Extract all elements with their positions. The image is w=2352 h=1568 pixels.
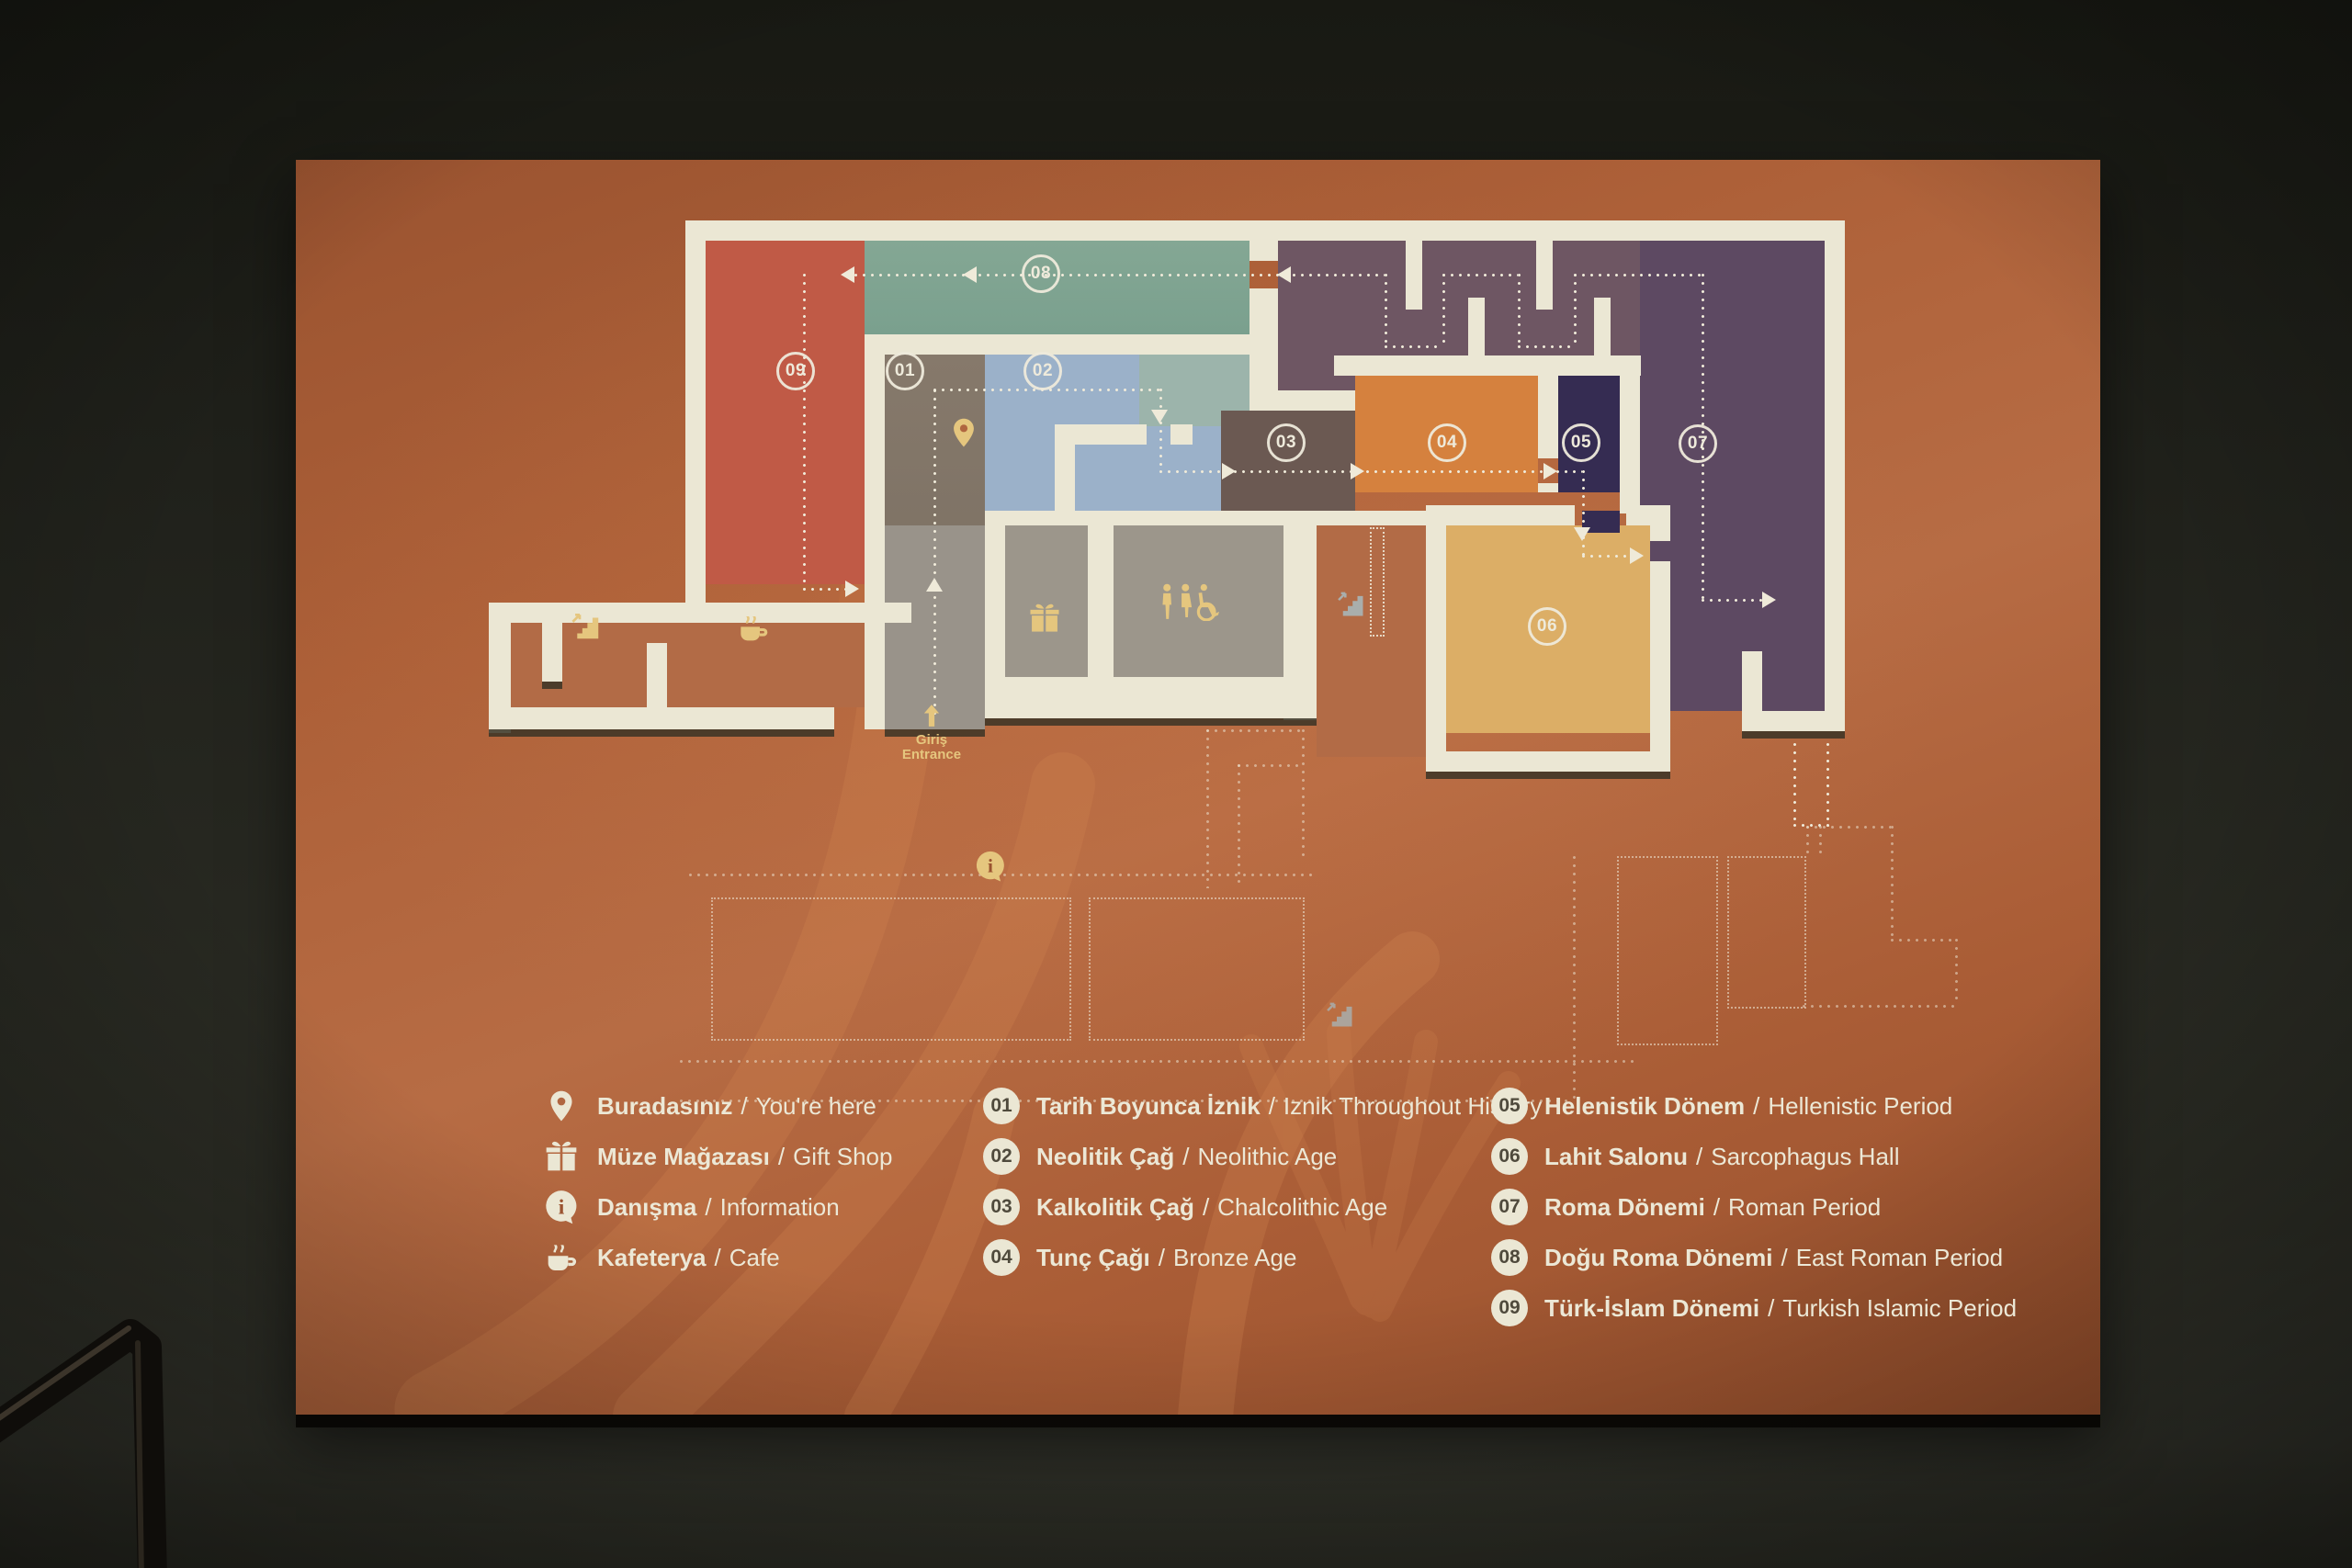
maze-stub-4 [1594,298,1611,376]
lower-corridor-t2 [1238,764,1302,767]
maze-stub-1 [1406,241,1422,310]
legend-row-09: 09 Türk-İslam Dönemi/Turkish Islamic Per… [1491,1290,2017,1326]
ghost-rect-b [1089,897,1305,1041]
route-arrow-01 [926,578,943,592]
room06-shadow [1426,772,1670,779]
legend-badge-08: 08 [1491,1239,1528,1276]
wing-partition-a [542,623,562,682]
gift-icon [1027,601,1062,640]
ghost-v-1 [1573,856,1576,1100]
legend-text: Helenistik Dönem/Hellenistic Period [1544,1092,1952,1121]
route-arrow-09 [845,581,859,597]
wall-02-maze-a [1249,241,1278,261]
wc-icon [1143,582,1238,626]
route-maze-dip2b [1518,345,1574,348]
legend-text: Neolitik Çağ/Neolithic Age [1036,1143,1337,1171]
museum-floor-plan-board: 01 02 03 04 05 06 07 08 09 Giriş Entranc… [296,160,2100,1416]
ghost-v-5 [1819,826,1822,856]
exit-shadow [1742,731,1845,739]
plan-marker-08: 08 [1022,254,1060,293]
ghost-h-5 [1891,939,1955,942]
ghost-v-2 [1955,939,1958,1005]
cafe-icon [735,610,772,651]
legend-row-gift-shop: Müze Mağazası/Gift Shop [542,1137,892,1176]
route-02-down [1159,389,1162,472]
route-arrow-06 [1574,527,1590,541]
legend-row-06: 06 Lahit Salonu/Sarcophagus Hall [1491,1138,1899,1175]
plan-marker-09: 09 [776,352,815,390]
outer-wall-left [685,220,706,623]
legend-badge-05: 05 [1491,1088,1528,1124]
ghost-rect-a [711,897,1071,1041]
outer-wall-right [1825,220,1845,713]
legend-row-03: 03 Kalkolitik Çağ/Chalcolithic Age [983,1189,1387,1225]
legend-badge-06: 06 [1491,1138,1528,1175]
lower-corridor-r [1302,729,1305,858]
exit-wall-h [1742,711,1845,731]
route-maze-dip1b [1385,345,1442,348]
legend-row-cafe: Kafeterya/Cafe [542,1238,780,1277]
legend-text: Buradasınız/You're here [597,1092,876,1121]
legend-row-07: 07 Roma Dönemi/Roman Period [1491,1189,1881,1225]
route-arrow-04 [1351,463,1364,479]
wall-04-05-a [1538,376,1558,458]
ghost-rect-d [1727,856,1806,1009]
route-maze-top-a [1442,274,1518,276]
wing-partition-a-shadow [542,682,562,689]
lower-corridor-m [1238,764,1240,888]
legend-badge-01: 01 [983,1088,1020,1124]
route-arrow-left-1 [841,266,854,283]
legend-text: Kalkolitik Çağ/Chalcolithic Age [1036,1193,1387,1222]
room06-wall-right-b [1650,561,1670,772]
route-arrow-02 [1151,410,1168,423]
route-maze-dip2r [1574,274,1577,348]
room-09-turkish-islamic [706,241,865,584]
route-06-h [1582,555,1635,558]
legend-badge-04: 04 [983,1239,1020,1276]
legend-text: Tunç Çağı/Bronze Age [1036,1244,1296,1272]
room02-inner-v [1055,445,1075,511]
legend-text: Türk-İslam Dönemi/Turkish Islamic Period [1544,1294,2017,1323]
floor-plan: 01 02 03 04 05 06 07 08 09 Giriş Entranc… [296,160,2100,1416]
route-maze-dip1r [1442,274,1445,348]
wing-shadow [489,729,834,737]
stairs-icon-ghost [1323,998,1356,1035]
gift-icon [542,1137,581,1176]
plan-marker-03: 03 [1267,423,1306,462]
maze-stub-2 [1536,241,1553,310]
wall-rooms-bottom [985,511,1426,525]
wc-shadow [985,718,1317,726]
cafe-stairs-wing [511,623,865,707]
legend-text: Danışma/Information [597,1193,840,1222]
route-arrow-07low [1630,547,1644,564]
legend-text: Lahit Salonu/Sarcophagus Hall [1544,1143,1899,1171]
room02-inner-h1 [1055,424,1147,445]
information-icon [542,1188,581,1226]
information-icon [973,849,1008,888]
route-maze-dip1l [1385,274,1387,348]
wall-under-green [865,334,1249,355]
route-green [854,274,1385,276]
room02-inner-h2 [1170,424,1193,445]
wall-05-07 [1620,376,1640,513]
legend-row-04: 04 Tunç Çağı/Bronze Age [983,1239,1296,1276]
legend-row-02: 02 Neolitik Çağ/Neolithic Age [983,1138,1337,1175]
legend-text: Kafeterya/Cafe [597,1244,780,1272]
route-maze-dip2l [1518,274,1521,348]
wing-wall-top [489,603,911,623]
ghost-v-3 [1891,826,1894,939]
plan-marker-01: 01 [886,352,924,390]
room06-wall-bottom [1426,751,1670,772]
wall-gift-wc [1088,525,1114,677]
entrance-label: Giriş Entrance [886,702,978,762]
you-are-here-pin-icon [948,414,979,456]
cafe-icon [542,1238,581,1277]
legend-badge-09: 09 [1491,1290,1528,1326]
plan-marker-07: 07 [1679,424,1717,463]
legend-row-05: 05 Helenistik Dönem/Hellenistic Period [1491,1088,1952,1124]
route-arrow-exit [1762,592,1776,608]
route-exit-r [1826,743,1829,827]
legend-text: Doğu Roma Dönemi/East Roman Period [1544,1244,2003,1272]
room06-wall-left [1426,505,1446,772]
room-08-east-roman-gallery [865,241,1249,334]
route-maze-top-b [1574,274,1702,276]
wall-maze-03 [1278,390,1355,411]
maze-stub-3 [1468,298,1485,376]
wall-09-01 [865,334,885,729]
ghost-h-4 [1803,1005,1955,1008]
legend-badge-07: 07 [1491,1189,1528,1225]
route-arrow-left-2 [963,266,977,283]
route-arrow-05 [1543,463,1557,479]
location-pin-icon [542,1087,581,1125]
plan-marker-05: 05 [1562,423,1600,462]
wall-02-maze-b [1249,288,1278,411]
outer-wall-top [685,220,1845,241]
legend-text: Tarih Boyunca İznik/Iznik Throughout His… [1036,1092,1542,1121]
wall-wc-bottom [985,677,1317,718]
route-05-down [1582,470,1585,557]
entrance-label-tr: Giriş [916,732,947,748]
room06-wall-top-a [1426,505,1575,525]
wall-lobby-gift [985,525,1005,677]
route-09-v [803,274,806,590]
legend-text: Müze Mağazası/Gift Shop [597,1143,892,1171]
wing-partition-b [647,643,667,707]
entrance-up-arrow-icon [918,702,945,729]
legend-row-01: 01 Tarih Boyunca İznik/Iznik Throughout … [983,1088,1542,1124]
stairs-icon-gray [1334,587,1367,625]
legend-row-you-are-here: Buradasınız/You're here [542,1087,876,1125]
wall-04-05-b [1538,483,1558,492]
route-arrow-03 [1222,463,1236,479]
ghost-v-4 [1806,826,1809,856]
legend-badge-03: 03 [983,1189,1020,1225]
plan-marker-04: 04 [1428,423,1466,462]
route-exit-l [1793,743,1796,824]
legend-badge-02: 02 [983,1138,1020,1175]
route-arrow-left-3 [1277,266,1291,283]
lower-corridor-l [1206,729,1209,888]
legend-row-08: 08 Doğu Roma Dönemi/East Roman Period [1491,1239,2003,1276]
ghost-rect-c [1617,856,1718,1045]
plan-marker-06: 06 [1528,607,1566,646]
lower-corridor-t1 [1206,729,1302,732]
route-01-v [933,389,936,720]
wing-wall-bottom [489,707,834,729]
ghost-line-2 [680,1060,1639,1063]
route-07-h [1702,599,1768,602]
plan-marker-02: 02 [1023,352,1062,390]
stair-shaft-dotted [1370,527,1385,637]
legend-row-information: Danışma/Information [542,1188,840,1226]
exit-wall-v [1742,651,1762,713]
entrance-label-en: Entrance [902,747,961,762]
legend-text: Roma Dönemi/Roman Period [1544,1193,1881,1222]
route-09-h [803,588,847,591]
stairs-icon [568,608,603,648]
room06-wall-right-a [1650,505,1670,541]
